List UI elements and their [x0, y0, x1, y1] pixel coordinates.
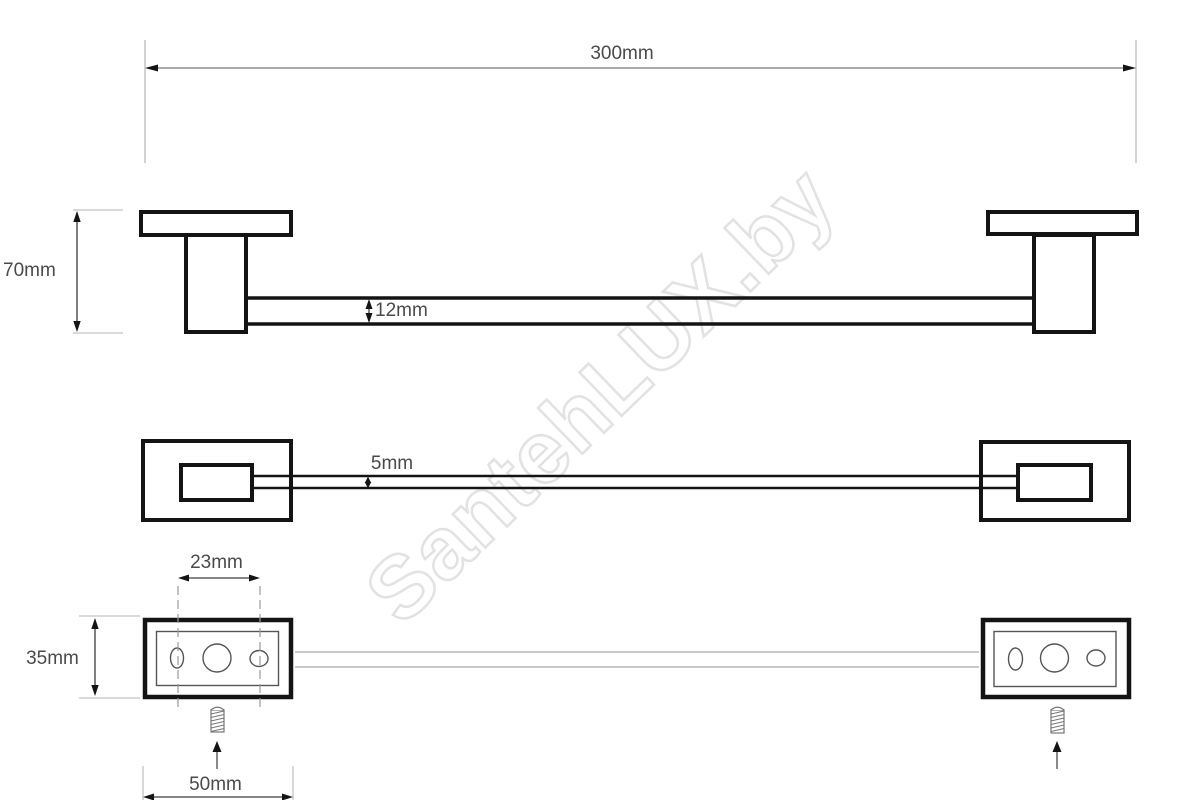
- left-base-hole-left: [171, 648, 184, 668]
- arrowhead-left: [143, 794, 154, 800]
- arrowhead-up: [366, 299, 373, 309]
- arrowhead-right: [282, 794, 293, 800]
- dim-bracket-height: [73, 210, 123, 333]
- screw-tip: [1051, 707, 1064, 710]
- right-bracket-stem: [1034, 235, 1094, 332]
- arrowhead-up: [91, 618, 98, 629]
- left-arm-outline: [181, 465, 252, 500]
- dim-label-overall-length: 300mm: [572, 43, 672, 65]
- arrowhead-down: [73, 321, 80, 332]
- right-base-hole-right: [1087, 650, 1105, 666]
- right-base-hole-center: [1041, 644, 1069, 672]
- dim-base-height: [79, 616, 140, 698]
- dim-label-base-height: 35mm: [26, 648, 79, 670]
- towel-bar-dimension-drawing: [0, 0, 1185, 800]
- arrowhead-up: [73, 211, 80, 222]
- dim-label-hole-spacing: 23mm: [190, 552, 243, 574]
- dim-bar-depth: [365, 477, 371, 489]
- dim-hole-spacing: [178, 575, 260, 582]
- arrowhead-left: [178, 575, 189, 582]
- arrowhead-right: [1123, 65, 1136, 72]
- left-bracket-stem: [186, 235, 246, 332]
- right-bracket-plate: [988, 212, 1137, 234]
- right-mounting-screw: [1051, 707, 1064, 769]
- technical-drawing-canvas: SantehLUX.by: [0, 0, 1185, 800]
- arrowhead-down: [366, 313, 373, 323]
- left-base-hole-center: [203, 644, 231, 672]
- plan-view: [143, 441, 1129, 520]
- dim-label-bracket-height: 70mm: [3, 260, 55, 282]
- dim-bar-height: [366, 299, 373, 323]
- screw-pointer-arrowhead: [213, 741, 222, 752]
- screw-tip: [211, 707, 224, 710]
- left-mounting-screw: [211, 707, 224, 769]
- arrowhead-right: [249, 575, 260, 582]
- arrowhead-down: [91, 685, 98, 696]
- dim-label-bar-height: 12mm: [375, 300, 429, 322]
- left-base-hole-right: [250, 651, 268, 667]
- right-arm-outline: [1018, 465, 1091, 500]
- arrowhead-left: [145, 65, 158, 72]
- dim-label-bar-depth: 5mm: [367, 453, 417, 475]
- left-bracket-plate: [141, 212, 291, 235]
- dim-label-base-width: 50mm: [189, 774, 242, 796]
- screw-pointer-arrowhead: [1053, 741, 1062, 752]
- base-view: [145, 586, 1129, 707]
- right-base-hole-left: [1009, 648, 1023, 670]
- front-view: [141, 212, 1137, 332]
